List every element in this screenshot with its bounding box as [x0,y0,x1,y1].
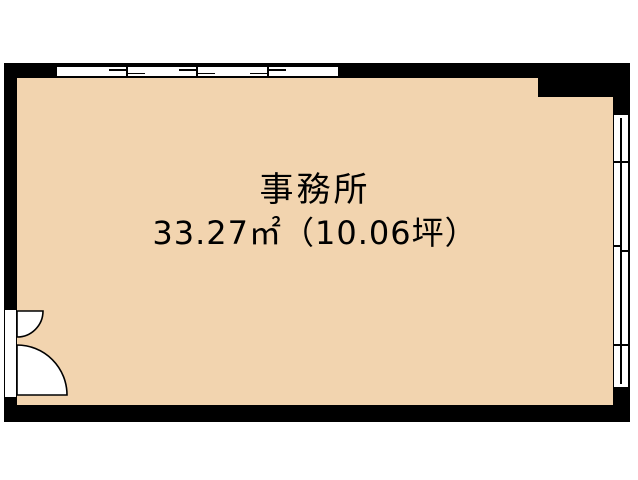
right-window-divider [614,161,628,163]
entrance-door-frame [4,310,17,397]
right-window-sash-tick [614,245,622,247]
top-window-sash-tick [250,73,267,75]
right-window [613,115,630,387]
top-window [57,63,338,78]
top-window-sash-tick [197,73,215,75]
top-window-sash-tick [127,73,145,75]
top-window-sash-tick [109,69,127,71]
top-window-sash-tick [268,69,286,71]
right-wall-upper-segment [613,63,630,115]
room-area-label: 33.27㎡（10.06坪） [17,212,613,255]
right-window-divider [614,344,628,346]
room-label-block: 事務所 33.27㎡（10.06坪） [17,169,613,255]
room-name-label: 事務所 [17,169,613,212]
floor-plan: 事務所 33.27㎡（10.06坪） [0,0,638,480]
left-wall-lower-segment [4,397,17,422]
right-window-sash-tick [620,250,628,252]
top-window-sash-tick [179,69,197,71]
left-wall-upper-segment [4,63,17,310]
bottom-wall [4,405,630,422]
